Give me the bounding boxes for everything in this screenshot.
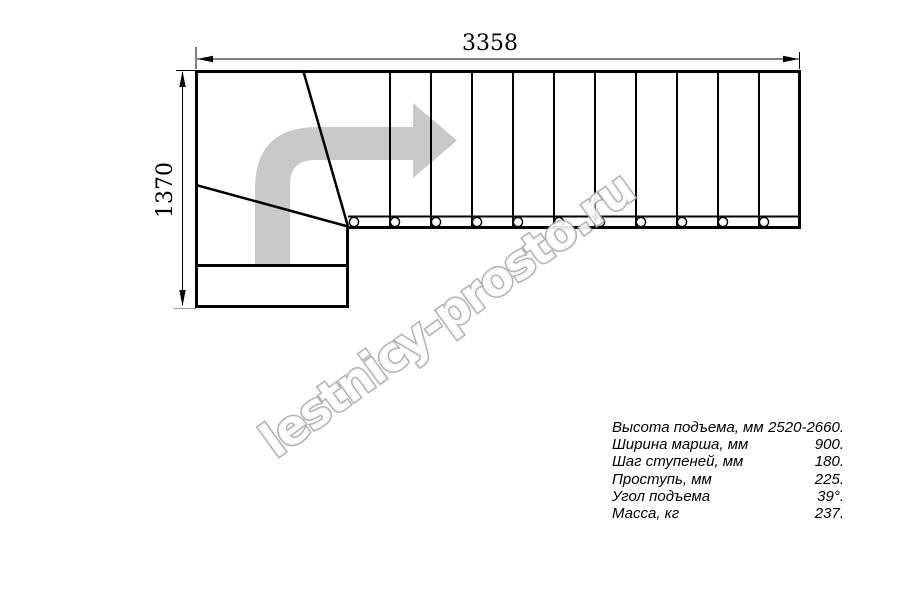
baluster-circle	[595, 217, 604, 226]
spec-label: Угол подъема	[612, 488, 710, 505]
spec-row-climb-angle: Угол подъема 39°.	[612, 488, 844, 505]
baluster-circle	[349, 217, 358, 226]
baluster-circle	[677, 217, 686, 226]
baluster-circle	[390, 217, 399, 226]
spec-label: Проступь, мм	[612, 471, 712, 488]
spec-row-height: Высота подъема, мм 2520-2660.	[612, 419, 844, 436]
spec-table: Высота подъема, мм 2520-2660. Ширина мар…	[612, 419, 844, 522]
baluster-markers	[349, 217, 768, 226]
baluster-circle	[431, 217, 440, 226]
dim-arrowhead-left	[197, 56, 213, 62]
spec-row-flight-width: Ширина марша, мм 900.	[612, 436, 844, 453]
dimension-label-height: 1370	[155, 150, 177, 230]
baluster-circle	[472, 217, 481, 226]
spec-label: Шаг ступеней, мм	[612, 453, 743, 470]
direction-arrow	[255, 103, 457, 266]
dim-arrowhead-up	[179, 71, 185, 87]
baluster-circle	[554, 217, 563, 226]
baluster-circle	[759, 217, 768, 226]
spec-value: 2520-2660.	[768, 419, 844, 436]
dim-arrowhead-right	[783, 56, 799, 62]
spec-value: 237.	[815, 505, 844, 522]
spec-value: 180.	[815, 453, 844, 470]
spec-label: Ширина марша, мм	[612, 436, 748, 453]
spec-value: 900.	[815, 436, 844, 453]
stair-plan-drawing: 3358 1370 lestnicy-prosto.ru Высота подъ…	[0, 0, 900, 600]
dimension-label-width: 3358	[450, 33, 530, 55]
spec-row-step-rise: Шаг ступеней, мм 180.	[612, 453, 844, 470]
dim-arrowhead-down	[179, 290, 185, 306]
spec-label: Масса, кг	[612, 505, 679, 522]
baluster-circle	[513, 217, 522, 226]
spec-label: Высота подъема, мм	[612, 419, 764, 436]
spec-value: 225.	[815, 471, 844, 488]
spec-row-mass: Масса, кг 237.	[612, 505, 844, 522]
baluster-circle	[718, 217, 727, 226]
spec-row-tread-depth: Проступь, мм 225.	[612, 471, 844, 488]
spec-value: 39°.	[817, 488, 844, 505]
baluster-circle	[636, 217, 645, 226]
